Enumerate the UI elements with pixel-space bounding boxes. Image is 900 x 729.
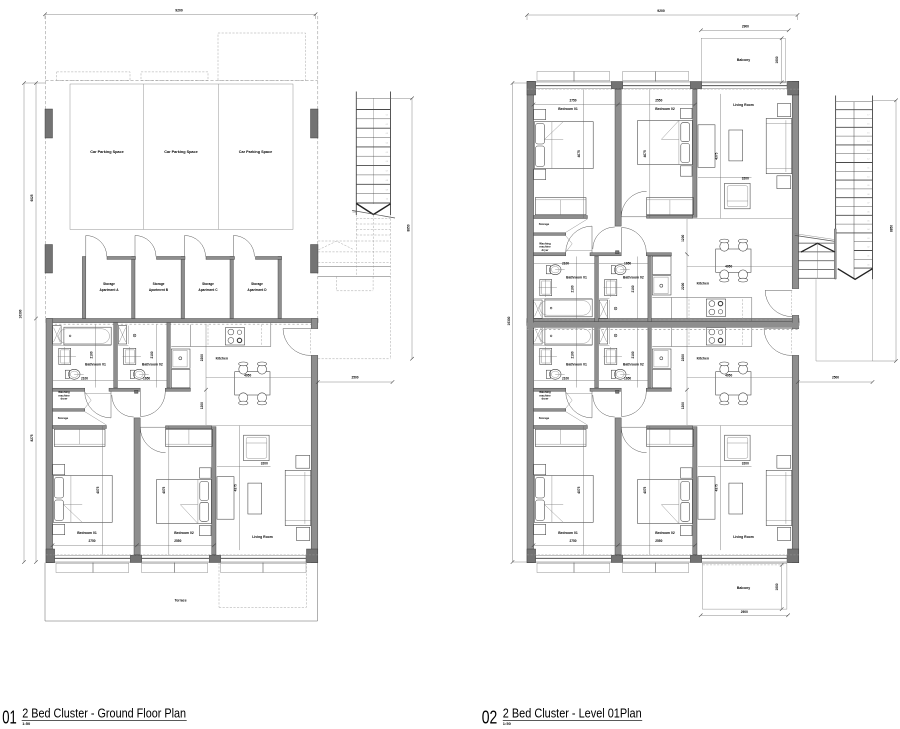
svg-text:6025: 6025 bbox=[30, 194, 34, 201]
svg-text:17: 17 bbox=[867, 115, 870, 117]
svg-text:00: 00 bbox=[867, 264, 870, 266]
svg-text:2 Bed Cluster - Ground Floor P: 2 Bed Cluster - Ground Floor Plan bbox=[22, 706, 186, 720]
svg-text:2200: 2200 bbox=[681, 283, 685, 290]
svg-text:04: 04 bbox=[386, 143, 389, 145]
svg-text:8275: 8275 bbox=[30, 434, 34, 441]
svg-text:04: 04 bbox=[867, 229, 870, 231]
svg-text:09: 09 bbox=[867, 185, 870, 187]
svg-text:13: 13 bbox=[867, 150, 870, 152]
svg-text:2100: 2100 bbox=[631, 285, 635, 292]
svg-text:9200: 9200 bbox=[657, 9, 665, 13]
svg-text:01: 01 bbox=[2, 707, 17, 728]
svg-text:Bedroom 01: Bedroom 01 bbox=[77, 531, 97, 535]
svg-text:4075: 4075 bbox=[162, 486, 166, 493]
svg-text:2100: 2100 bbox=[81, 376, 88, 380]
svg-text:Car Parking Space: Car Parking Space bbox=[164, 150, 198, 154]
svg-text:2200: 2200 bbox=[200, 354, 204, 361]
svg-text:Apartment D: Apartment D bbox=[247, 288, 267, 292]
svg-text:4075: 4075 bbox=[643, 150, 647, 157]
svg-text:1:50: 1:50 bbox=[22, 721, 31, 726]
svg-text:Bedroom 01: Bedroom 01 bbox=[558, 531, 578, 535]
svg-text:03: 03 bbox=[386, 133, 389, 135]
svg-text:-1: -1 bbox=[868, 273, 871, 275]
svg-text:Living Room: Living Room bbox=[252, 535, 273, 539]
svg-text:Storage: Storage bbox=[103, 282, 115, 286]
svg-text:Living Room: Living Room bbox=[733, 535, 754, 539]
svg-text:2100: 2100 bbox=[631, 351, 635, 358]
svg-text:Kitchen: Kitchen bbox=[697, 356, 709, 360]
svg-text:Bedroom 02: Bedroom 02 bbox=[174, 531, 194, 535]
svg-text:2550: 2550 bbox=[655, 539, 662, 543]
svg-text:3200: 3200 bbox=[742, 461, 749, 465]
svg-text:4050: 4050 bbox=[725, 264, 732, 268]
svg-text:Kitchen: Kitchen bbox=[216, 356, 228, 360]
svg-text:1650: 1650 bbox=[143, 376, 150, 380]
svg-text:2200: 2200 bbox=[681, 354, 685, 361]
svg-text:10: 10 bbox=[386, 199, 389, 201]
svg-text:Bedroom 02: Bedroom 02 bbox=[655, 107, 675, 111]
svg-text:Apartment B: Apartment B bbox=[149, 288, 169, 292]
svg-text:Storage: Storage bbox=[202, 282, 214, 286]
svg-text:Apartment C: Apartment C bbox=[198, 288, 218, 292]
svg-text:4050: 4050 bbox=[725, 374, 732, 378]
svg-text:15: 15 bbox=[867, 132, 870, 134]
svg-text:4050: 4050 bbox=[244, 374, 251, 378]
svg-text:4375: 4375 bbox=[715, 152, 719, 159]
svg-text:05: 05 bbox=[386, 152, 389, 154]
svg-text:2500: 2500 bbox=[832, 376, 839, 380]
svg-text:2750: 2750 bbox=[569, 98, 576, 102]
svg-text:08: 08 bbox=[386, 180, 389, 182]
svg-text:10: 10 bbox=[867, 176, 870, 178]
svg-text:dryer: dryer bbox=[542, 248, 550, 252]
svg-text:Balcony: Balcony bbox=[737, 58, 750, 62]
svg-text:2100: 2100 bbox=[570, 351, 574, 358]
svg-text:2100: 2100 bbox=[150, 351, 154, 358]
svg-text:Terrace: Terrace bbox=[175, 599, 187, 603]
svg-text:dryer: dryer bbox=[542, 397, 550, 401]
svg-text:Balcony: Balcony bbox=[737, 586, 750, 590]
svg-text:Storage: Storage bbox=[539, 222, 550, 226]
svg-text:2900: 2900 bbox=[742, 25, 749, 29]
svg-text:14: 14 bbox=[867, 141, 870, 143]
svg-text:Car Parking Space: Car Parking Space bbox=[90, 150, 124, 154]
svg-text:1200: 1200 bbox=[681, 402, 685, 409]
svg-text:2100: 2100 bbox=[570, 285, 574, 292]
svg-text:Storage: Storage bbox=[153, 282, 165, 286]
svg-text:01: 01 bbox=[386, 115, 389, 117]
svg-text:3200: 3200 bbox=[261, 461, 268, 465]
svg-text:9200: 9200 bbox=[175, 8, 183, 12]
svg-text:8850: 8850 bbox=[890, 225, 894, 232]
svg-text:8850: 8850 bbox=[406, 224, 410, 231]
svg-text:Living Room: Living Room bbox=[733, 103, 754, 107]
svg-text:07: 07 bbox=[867, 203, 870, 205]
svg-text:Bathroom 01: Bathroom 01 bbox=[566, 276, 587, 280]
svg-text:1600: 1600 bbox=[775, 56, 779, 63]
svg-text:2900: 2900 bbox=[741, 610, 748, 614]
svg-text:2 Bed Cluster - Level 01Plan: 2 Bed Cluster - Level 01Plan bbox=[503, 706, 642, 720]
svg-text:01: 01 bbox=[867, 256, 870, 258]
svg-text:Storage: Storage bbox=[539, 416, 550, 420]
svg-text:08: 08 bbox=[867, 194, 870, 196]
svg-text:4075: 4075 bbox=[577, 486, 581, 493]
svg-text:16300: 16300 bbox=[19, 309, 23, 318]
svg-text:12: 12 bbox=[867, 159, 870, 161]
svg-text:1:50: 1:50 bbox=[503, 721, 512, 726]
svg-text:Storage: Storage bbox=[251, 282, 263, 286]
svg-text:Bedroom 01: Bedroom 01 bbox=[558, 107, 578, 111]
svg-text:02: 02 bbox=[867, 247, 870, 249]
svg-text:Bedroom 02: Bedroom 02 bbox=[655, 531, 675, 535]
svg-text:2100: 2100 bbox=[562, 376, 569, 380]
svg-text:4375: 4375 bbox=[234, 484, 238, 491]
svg-text:1650: 1650 bbox=[624, 262, 631, 266]
svg-text:2750: 2750 bbox=[88, 539, 95, 543]
svg-text:1650: 1650 bbox=[624, 376, 631, 380]
svg-text:02: 02 bbox=[386, 124, 389, 126]
svg-text:16: 16 bbox=[867, 124, 870, 126]
svg-text:2750: 2750 bbox=[569, 539, 576, 543]
svg-text:1600: 1600 bbox=[775, 583, 779, 590]
svg-text:2100: 2100 bbox=[89, 351, 93, 358]
svg-text:11: 11 bbox=[867, 168, 870, 170]
svg-text:4075: 4075 bbox=[577, 150, 581, 157]
svg-text:1200: 1200 bbox=[200, 402, 204, 409]
svg-text:4075: 4075 bbox=[643, 486, 647, 493]
svg-text:Bathroom 02: Bathroom 02 bbox=[142, 362, 163, 366]
svg-text:Bathroom 01: Bathroom 01 bbox=[85, 362, 106, 366]
svg-text:06: 06 bbox=[386, 161, 389, 163]
svg-text:Bathroom 02: Bathroom 02 bbox=[623, 362, 644, 366]
svg-text:Apartment A: Apartment A bbox=[99, 288, 119, 292]
svg-text:02: 02 bbox=[482, 707, 498, 728]
svg-text:Bathroom 01: Bathroom 01 bbox=[566, 362, 587, 366]
svg-text:Car Parking Space: Car Parking Space bbox=[239, 150, 273, 154]
svg-text:09: 09 bbox=[386, 189, 389, 191]
svg-text:2550: 2550 bbox=[174, 539, 181, 543]
svg-text:16300: 16300 bbox=[507, 316, 511, 325]
svg-text:05: 05 bbox=[867, 220, 870, 222]
svg-text:03: 03 bbox=[867, 238, 870, 240]
svg-text:06: 06 bbox=[867, 212, 870, 214]
svg-text:07: 07 bbox=[386, 171, 389, 173]
svg-text:3200: 3200 bbox=[742, 177, 749, 181]
svg-text:Storage: Storage bbox=[58, 416, 69, 420]
svg-text:dryer: dryer bbox=[61, 397, 69, 401]
svg-text:2550: 2550 bbox=[655, 98, 662, 102]
svg-text:2500: 2500 bbox=[351, 376, 358, 380]
svg-text:1200: 1200 bbox=[681, 235, 685, 242]
svg-text:4075: 4075 bbox=[96, 486, 100, 493]
svg-text:Bathroom 02: Bathroom 02 bbox=[623, 276, 644, 280]
svg-text:Kitchen: Kitchen bbox=[697, 282, 709, 286]
svg-text:4375: 4375 bbox=[715, 484, 719, 491]
svg-text:2100: 2100 bbox=[562, 262, 569, 266]
